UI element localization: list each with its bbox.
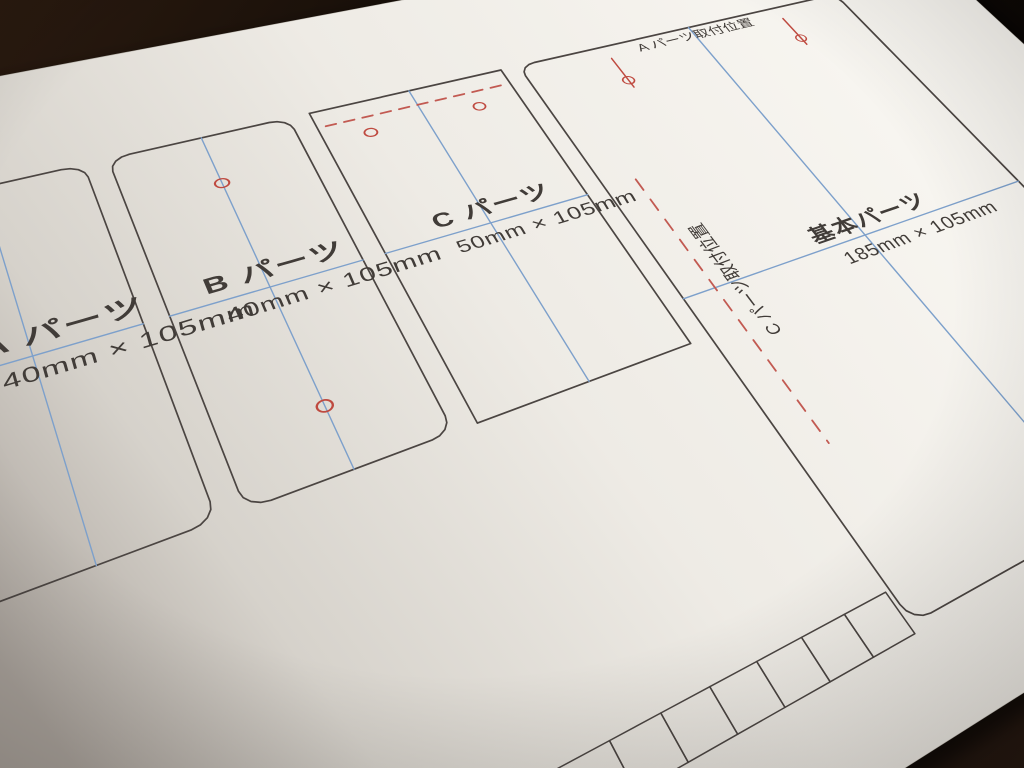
photo-of-pattern-sheet: A パーツ40mm × 105mmB パーツ40mm × 105mmC パーツ5…	[0, 0, 1024, 768]
scene: A パーツ40mm × 105mmB パーツ40mm × 105mmC パーツ5…	[0, 0, 1024, 768]
